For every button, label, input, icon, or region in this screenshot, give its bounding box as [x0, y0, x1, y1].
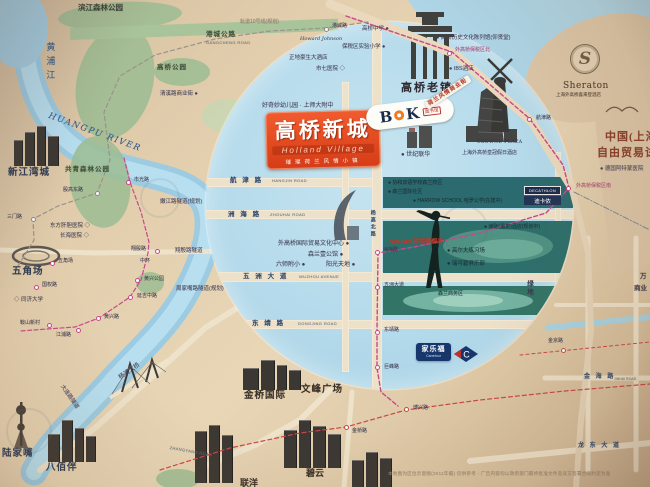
metro-station-label: 江浦路 [56, 333, 71, 339]
map-label: 高桥公园 [157, 64, 187, 71]
map-label: 港城公路 [206, 31, 236, 38]
metro-station-label: 东靖路 [384, 328, 399, 334]
metro-station-marker [404, 407, 409, 412]
map-label: 东方肝胆医院 ◇ [50, 223, 90, 229]
metro-station-label: 五角场 [58, 259, 73, 265]
map-label: 周家嘴路隧道(规划) [176, 286, 224, 292]
map-label: 新江湾城 [8, 168, 50, 179]
map-label: ◇ 同济大学 [14, 297, 43, 303]
map-label: ● IBS酒店 [449, 66, 474, 72]
map-label: 中国(上海 [605, 131, 650, 144]
metro-station-label: 市光路 [134, 178, 149, 184]
metro-station-label: 航津路 [536, 116, 551, 122]
map-label: ZHANGYANG ROAD [169, 446, 212, 458]
map-label: 万 [640, 273, 647, 280]
metro-station-label: 翔殷路 [131, 247, 146, 253]
map-label: 大连路隧道 [59, 384, 80, 410]
map-label: 森兰商务区 [438, 292, 463, 298]
metro-station-marker [50, 261, 55, 266]
metro-station-marker [95, 191, 100, 196]
metro-station-marker [375, 365, 380, 370]
map-label: HUANGPU RIVER [47, 112, 143, 155]
map-label: 轨道10号线(规划) [240, 20, 279, 26]
map-label: 中环 [140, 259, 150, 265]
map-label: 文峰广场 [301, 385, 343, 396]
map-label: ● 协和双语学校森兰校区 [388, 181, 442, 187]
map-label: 六师附小 ● [276, 262, 305, 269]
map-label: 碧云 [306, 468, 324, 478]
metro-station-marker [561, 348, 566, 353]
map-label: 五角场 [12, 267, 44, 278]
map-label: 东 靖 路 [252, 320, 285, 327]
map-label: Howard Johnson [300, 37, 342, 43]
map-label: ● 高桥历史文化陈列馆(仰贤堂) [436, 35, 511, 41]
metro-station-marker [126, 180, 131, 185]
metro-station-marker [344, 425, 349, 430]
map-label: DONGJING ROAD [298, 322, 337, 327]
map-label: ● 高尔夫练习场 [447, 248, 485, 254]
map-label: 滨江森林公园 [78, 4, 123, 13]
map-label: ● 瑞可碧俱乐部 [447, 261, 485, 267]
metro-station-marker [527, 117, 532, 122]
metro-station-marker [47, 323, 52, 328]
metro-station-label: 洲海路 [383, 248, 398, 254]
map-label: CROWNE PLAZA [477, 140, 522, 145]
map-label: 杨浦大桥 [118, 362, 142, 381]
map-label: Sheraton [563, 81, 609, 91]
map-label: ZHOUHAI ROAD [270, 213, 305, 218]
map-label: 嫩江路隧道(规划) [160, 199, 202, 205]
map-label: 金 海 路 [584, 374, 615, 381]
map-label: 航 津 路 [230, 177, 263, 184]
map-label: Auchan 欧尚旗舰店 [389, 239, 443, 246]
map-label: 洲 海 路 [228, 211, 261, 218]
metro-station-marker [31, 217, 36, 222]
map-label: 八佰伴 [46, 463, 78, 474]
metro-station-marker [324, 27, 329, 32]
metro-station-label: 延吉中路 [137, 294, 157, 300]
map-label: ● 世纪联华 [401, 152, 430, 159]
map-label: 保税区实验小学 ● [342, 44, 385, 50]
metro-station-marker [34, 285, 39, 290]
map-label: JINHAI ROAD [614, 377, 636, 381]
map-label: ● 洲际(温泉)酒店(规划中) [484, 225, 540, 231]
metro-station-label: 金桥路 [352, 429, 367, 435]
metro-station-label: 殷高东路 [63, 188, 83, 194]
metro-station-label: 五洲大道 [384, 283, 404, 289]
map-label: 正地豪生大酒店 [289, 55, 328, 61]
metro-station-marker [76, 328, 81, 333]
metro-station-label: 博兴路 [413, 406, 428, 412]
metro-station-label: 黄兴路 [104, 315, 119, 321]
map-photo: { "project": {"name":"高桥新城","en":"Hollan… [0, 0, 650, 487]
metro-station-marker [135, 278, 140, 283]
metro-station-label: 外高桥保税区南 [576, 184, 611, 190]
map-label: 黄浦江 [44, 42, 54, 84]
map-label: 共青森林公园 [65, 166, 110, 173]
map-label: ● 德国阿特蒙医院 [600, 166, 643, 172]
map-labels-layer: 滨江森林公园轨道10号线(规划)港城公路GANGCHENG ROAD高桥公园清溪… [0, 0, 650, 487]
metro-station-marker [375, 285, 380, 290]
map-label: 商业 [634, 285, 647, 292]
map-label: 市七医院 ◇ [316, 66, 345, 72]
map-label: 翔殷路隧道 [175, 248, 203, 254]
metro-station-label: 港城路 [332, 24, 347, 30]
metro-station-label: 黄兴公园 [144, 277, 164, 283]
map-label: 五 洲 大 道 [243, 273, 288, 280]
map-label: 上海外高桥皇冠假日酒店 [462, 151, 517, 157]
map-label: 陆家嘴 [2, 449, 34, 460]
map-label: 阳光天地 ● [326, 262, 355, 269]
metro-station-marker [128, 295, 133, 300]
map-label: HANGJIN ROAD [272, 179, 307, 184]
map-label: 金桥国际 [244, 391, 286, 402]
map-label: 本地图为区位示意图(2011年摄) 仅供参考 · 广告内容均以政府部门最终批准文… [388, 471, 611, 476]
metro-station-label: 三门路 [7, 215, 22, 221]
map-label: 森兰壹公馆 ● [308, 252, 343, 259]
map-label: 绿地 [525, 280, 532, 297]
map-label: 高桥中学 ● [362, 26, 389, 32]
map-label: 龙 东 大 道 [578, 443, 621, 450]
map-label: 清溪路商业街 ● [160, 91, 198, 97]
metro-station-marker [447, 51, 452, 56]
metro-station-marker [96, 316, 101, 321]
metro-station-marker [566, 186, 571, 191]
metro-station-marker [375, 330, 380, 335]
metro-station-label: 外高桥保税区北 [455, 48, 490, 54]
map-label: 自由贸易试验区 [597, 147, 650, 160]
metro-station-label: 金京路 [548, 339, 563, 345]
metro-station-label: 巨峰路 [384, 365, 399, 371]
map-label: 外高桥国际贸易文化中心 ● [278, 241, 349, 248]
map-label: 好奇妙幼儿园 · 上师大附中 [262, 103, 333, 110]
map-label: 长海医院 ◇ [60, 233, 89, 239]
map-label: 上海外高桥喜来登酒店 [556, 92, 601, 97]
map-label: WUZHOU AVENUE [299, 275, 339, 280]
map-label: 杨高北路 [369, 210, 375, 238]
map-label: ● 森兰国际社区 [388, 190, 422, 196]
map-label: GANGCHENG ROAD [206, 41, 251, 46]
map-label: ● HARROW SCHOOL 哈罗公学(在建中) [413, 199, 502, 205]
metro-station-marker [375, 250, 380, 255]
map-label: 联洋 [240, 478, 258, 487]
metro-station-label: 国权路 [42, 283, 57, 289]
metro-station-label: 鞍山新村 [20, 321, 40, 327]
metro-station-marker [155, 249, 160, 254]
